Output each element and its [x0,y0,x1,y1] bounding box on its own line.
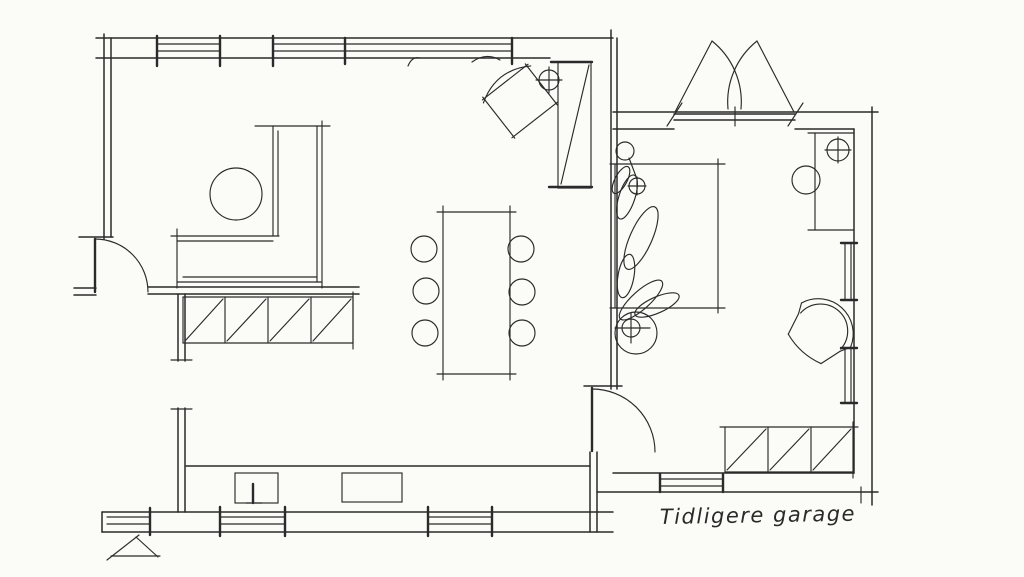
bedroom-wardrobe [720,422,858,478]
dining-chair [413,278,439,304]
french-door-right-arc [728,41,757,109]
bed-pillows [609,164,683,325]
bedside-table [615,312,657,354]
floor-plan-sketch: Tidligere garage [0,0,1024,577]
dining-chair [411,236,437,262]
lowboard-right [342,473,402,502]
french-doors [667,41,803,126]
kitchen-stool [210,168,262,220]
windows [107,36,857,536]
north-arrow [107,535,160,560]
kitchen-base-cabinets [183,292,353,349]
french-door-left-leaf [675,41,712,112]
dining-table [411,206,535,380]
bedroom-door [592,388,655,452]
dining-chair [508,236,534,262]
kitchen-counter [171,121,330,288]
dining-chair [509,320,535,346]
dining-chair [412,320,438,346]
french-door-right-leaf [757,41,794,112]
exterior-walls [74,30,878,532]
entry-door [95,239,148,292]
lowboard-left [235,473,278,503]
bedroom-floor-lamp [616,142,646,195]
bed [609,159,725,325]
entry-door-swing-arc [95,239,148,292]
bedroom-door-swing-arc [592,389,655,452]
desk [792,133,854,230]
former-garage-label: Tidligere garage [660,502,856,529]
french-door-left-arc [712,41,741,109]
desk-chair [792,166,820,194]
dining-chair [509,279,535,305]
tall-cabinet [549,62,592,188]
